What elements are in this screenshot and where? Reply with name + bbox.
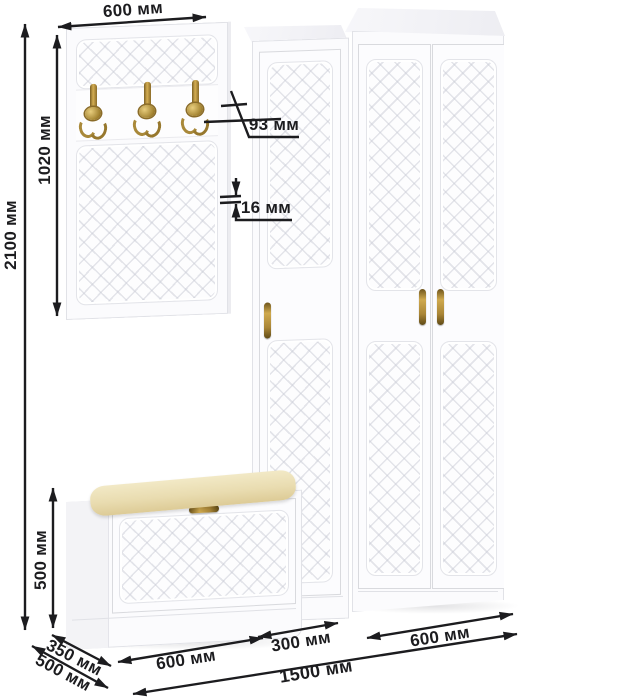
wardrobe-door-left-upper-panel — [366, 59, 423, 291]
bench-flap-door — [112, 498, 296, 614]
dim-label-bench-height: 500 мм — [31, 515, 51, 605]
wardrobe-door-right-lower-panel — [440, 341, 497, 576]
wardrobe-door-left — [358, 44, 431, 589]
shoe-bench — [66, 462, 306, 654]
wardrobe-door-right-upper-panel — [440, 59, 497, 291]
wardrobe-door-left-lower-panel — [366, 341, 423, 576]
dim-label-panel-width: 600 мм — [87, 0, 178, 23]
dim-label-total-height: 2100 мм — [1, 190, 21, 280]
hook-panel-lower-quilt — [76, 140, 218, 305]
coat-hook-1 — [79, 83, 107, 136]
dim-label-total-width: 1500 мм — [260, 653, 372, 690]
wardrobe-door-right — [432, 44, 505, 589]
furniture-dimension-diagram: 600 мм 2100 мм 1020 мм 93 мм 16 мм 500 м… — [0, 0, 629, 700]
coat-hook-3 — [181, 80, 209, 133]
wardrobe-door-right-handle — [437, 289, 444, 325]
dim-label-panel-height: 1020 мм — [35, 105, 55, 195]
bench-door-panel — [119, 509, 289, 604]
wardrobe — [352, 31, 504, 612]
dim-label-wardrobe-width: 600 мм — [394, 620, 486, 654]
coat-hook-panel — [66, 22, 231, 320]
dim-label-panel-thickness: 16 мм — [236, 198, 296, 218]
coat-hook-2 — [133, 81, 161, 134]
dim-label-hook-projection: 93 мм — [244, 115, 304, 135]
cabinet-door-handle — [264, 302, 271, 338]
cabinet-door-upper-panel — [267, 60, 333, 269]
wardrobe-door-left-handle — [419, 289, 426, 325]
